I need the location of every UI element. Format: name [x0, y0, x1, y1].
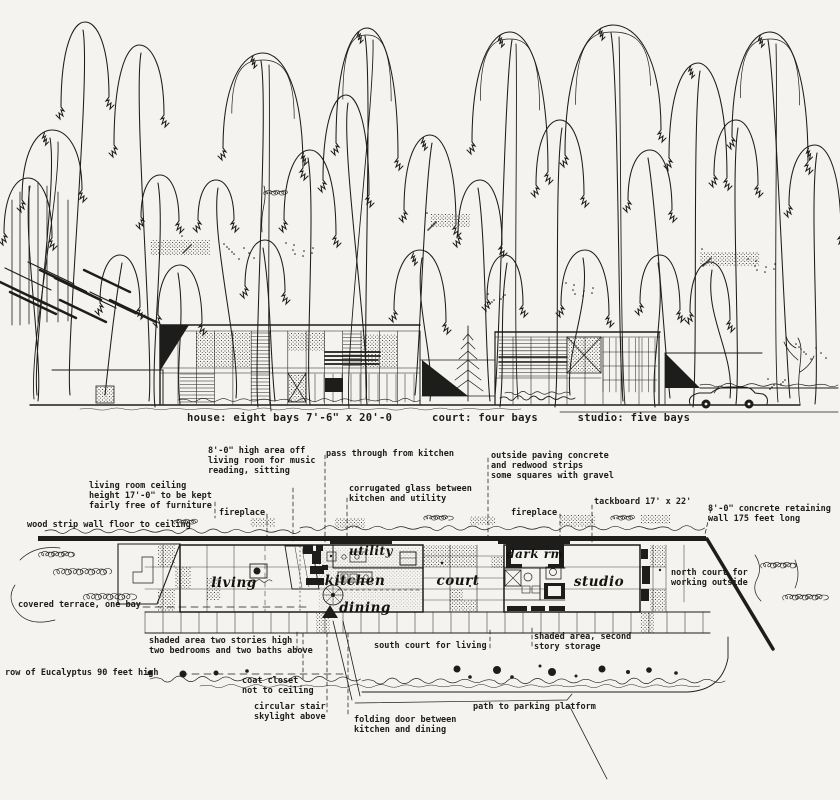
- annotation-shaded-two-story: shaded area two stories high two bedroom…: [149, 636, 313, 656]
- annotation-pass-through: pass through from kitchen: [326, 449, 454, 459]
- annotation-south-court: south court for living: [374, 641, 487, 651]
- room-label-studio: studio: [574, 574, 624, 590]
- annotation-wood-strip: wood strip wall floor to ceiling: [27, 520, 191, 530]
- elevation-caption: house: eight bays 7'-6" x 20'-0 court: f…: [187, 412, 690, 424]
- room-label-court: court: [437, 573, 480, 589]
- annotation-path-parking: path to parking platform: [473, 702, 596, 712]
- annotation-shaded-storage: shaded area, second story storage: [534, 632, 631, 652]
- annotation-north-court: north court for working outside: [671, 568, 748, 588]
- annotation-fireplace-left: fireplace: [219, 508, 265, 518]
- room-label-dining: dining: [339, 600, 391, 616]
- annotation-tackboard: tackboard 17' x 22': [594, 497, 691, 507]
- room-label-utility: utility: [349, 544, 393, 558]
- annotation-covered-terrace: covered terrace, one bay: [18, 600, 141, 610]
- annotation-circular-stair: circular stair skylight above: [254, 702, 326, 722]
- annotation-coat-closet: coat closet not to ceiling: [242, 676, 314, 696]
- annotation-retaining-wall: 8'-0" concrete retaining wall 175 feet l…: [708, 504, 831, 524]
- room-label-living: living: [211, 575, 256, 591]
- room-label-dark-rm: dark rm: [506, 547, 564, 561]
- annotation-ceiling-height: living room ceiling height 17'-0" to be …: [89, 481, 212, 511]
- annotation-folding-door: folding door between kitchen and dining: [354, 715, 456, 735]
- annotation-fireplace-right: fireplace: [511, 508, 557, 518]
- house-elevation-sketch: [30, 214, 838, 412]
- annotation-high-area: 8'-0" high area off living room for musi…: [208, 446, 315, 476]
- drawing-linework: [0, 0, 840, 800]
- architectural-drawing-sheet: house: eight bays 7'-6" x 20'-0 court: f…: [0, 0, 840, 800]
- room-label-kitchen: kitchen: [325, 573, 386, 589]
- annotation-eucalyptus-row: row of Eucalyptus 90 feet high: [5, 668, 159, 678]
- annotation-outside-paving: outside paving concrete and redwood stri…: [491, 451, 614, 481]
- annotation-corrugated-glass: corrugated glass between kitchen and uti…: [349, 484, 472, 504]
